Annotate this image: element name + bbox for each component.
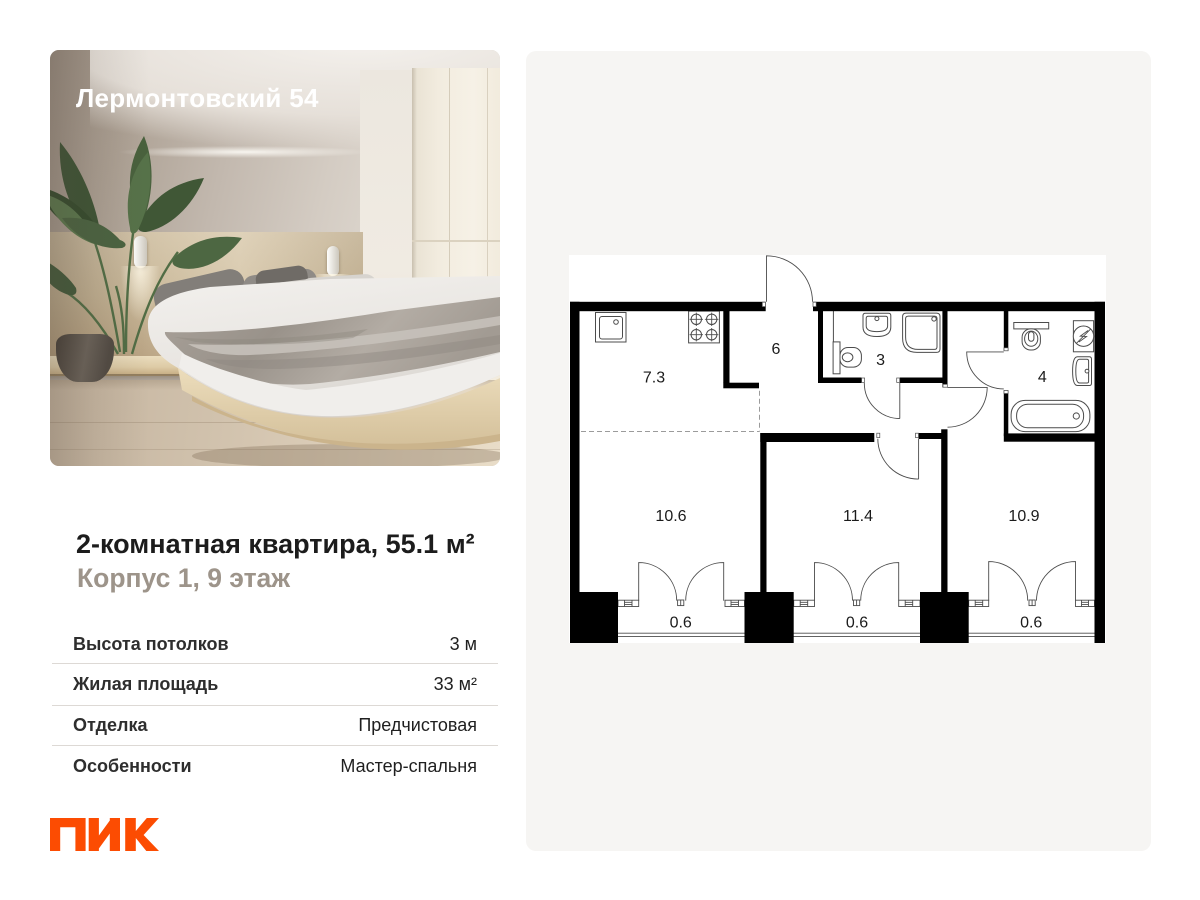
svg-text:10.6: 10.6 — [655, 508, 686, 525]
svg-text:0.6: 0.6 — [846, 615, 868, 632]
svg-text:0.6: 0.6 — [670, 615, 692, 632]
svg-text:3: 3 — [876, 352, 885, 369]
svg-text:10.9: 10.9 — [1008, 508, 1039, 525]
svg-text:7.3: 7.3 — [643, 370, 665, 387]
svg-text:4: 4 — [1038, 369, 1047, 386]
svg-text:0.6: 0.6 — [1020, 615, 1042, 632]
svg-text:11.4: 11.4 — [843, 508, 873, 525]
svg-text:6: 6 — [772, 341, 781, 358]
